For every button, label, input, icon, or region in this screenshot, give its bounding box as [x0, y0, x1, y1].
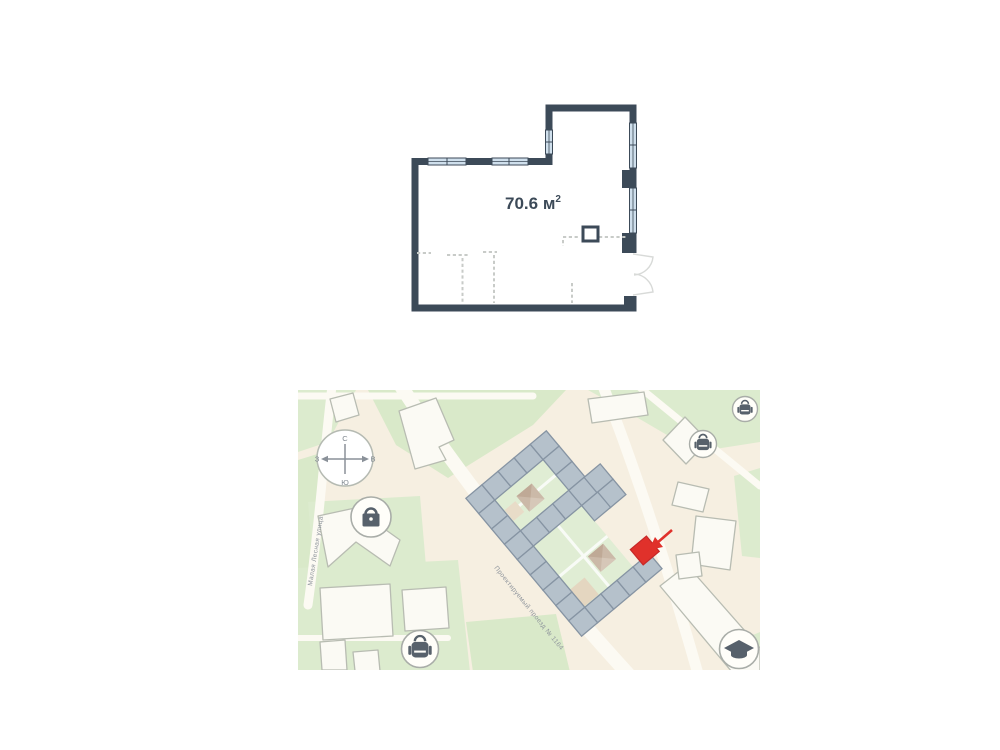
compass-west: З	[315, 455, 320, 464]
building	[353, 650, 380, 670]
area-superscript: 2	[555, 194, 561, 205]
listing-page: 70.6 м2	[0, 0, 1000, 750]
lock-icon	[351, 497, 391, 537]
school-backpack-icon	[402, 631, 439, 668]
area-value: 70.6	[505, 194, 538, 213]
compass-north: С	[342, 434, 348, 443]
school-backpack-icon	[733, 397, 758, 422]
building	[320, 584, 393, 640]
compass-south: Ю	[341, 478, 349, 487]
wall-pier	[624, 296, 636, 310]
svg-text:70.6 м2: 70.6 м2	[505, 194, 561, 213]
location-map[interactable]: С Ю З В	[298, 390, 760, 670]
compass-east: В	[370, 455, 375, 464]
electrical-box	[583, 227, 598, 241]
building	[676, 552, 702, 579]
area-unit: м	[543, 194, 556, 213]
floor-plan: 70.6 м2	[398, 93, 663, 323]
area-label: 70.6 м2	[505, 194, 561, 213]
building	[402, 587, 449, 631]
wall-pier	[622, 170, 637, 188]
graduation-cap-icon	[720, 630, 759, 669]
building	[320, 640, 347, 670]
school-backpack-icon	[690, 431, 717, 458]
